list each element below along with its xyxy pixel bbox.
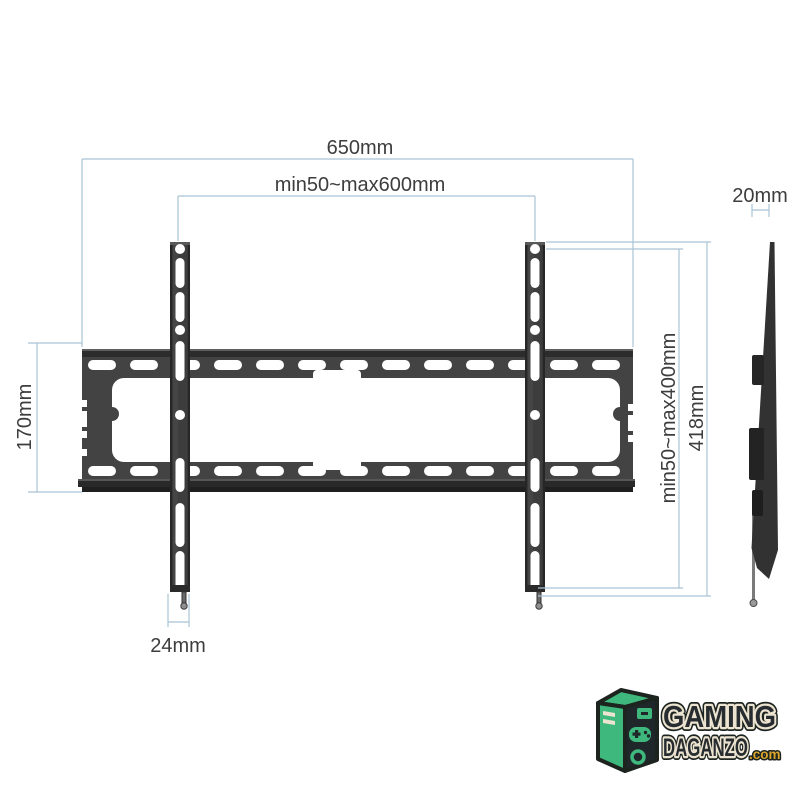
front-view-wall-plate	[78, 349, 635, 492]
diagram-canvas: 650mm min50~max600mm 20mm 170mm min50~ma…	[0, 0, 800, 800]
dimension-label-profile-depth: 20mm	[732, 185, 788, 207]
brand-logo: GAMING GAMING DAGANZO DAGANZO .com	[598, 690, 781, 771]
dimension-600-lines	[178, 196, 535, 241]
gamepad-icon	[629, 727, 651, 742]
left-rail	[170, 242, 190, 609]
dimension-label-total-width: 650mm	[327, 137, 394, 159]
right-rail	[525, 242, 545, 609]
brand-line2: DAGANZO	[663, 734, 748, 762]
brand-text: GAMING GAMING DAGANZO DAGANZO .com	[663, 699, 781, 762]
dimension-170-lines	[28, 343, 82, 492]
dimension-label-rail-width: 24mm	[150, 635, 206, 657]
dimension-label-bracket-height: 418mm	[686, 385, 708, 452]
product-dimension-diagram: 650mm min50~max600mm 20mm 170mm min50~ma…	[0, 0, 800, 800]
brand-suffix: .com	[749, 747, 781, 762]
dimension-label-horizontal-hole-pattern: min50~max600mm	[275, 174, 446, 196]
dimension-label-plate-height: 170mm	[14, 384, 36, 451]
dimension-label-vertical-hole-pattern: min50~max400mm	[658, 333, 680, 504]
side-view-profile	[749, 242, 778, 607]
brand-line1: GAMING	[663, 699, 776, 734]
